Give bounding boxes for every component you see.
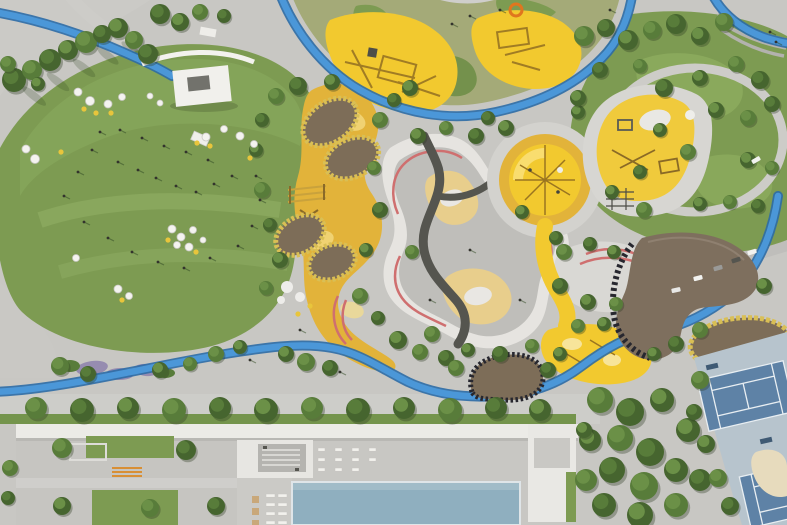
person: [775, 41, 778, 44]
tree-crown: [610, 298, 619, 307]
person: [155, 177, 158, 180]
tree-crown: [164, 399, 179, 414]
tree-crown: [709, 103, 719, 113]
parasol-yellow: [81, 106, 86, 111]
parasol-white: [200, 237, 206, 243]
tree-crown: [634, 60, 643, 69]
person: [63, 195, 66, 198]
tree-crown: [678, 419, 693, 434]
parasol-yellow: [165, 237, 170, 242]
tree-crown: [752, 200, 761, 209]
sun-lounger: [318, 458, 325, 461]
tree-crown: [348, 399, 363, 414]
tree-crown: [153, 363, 163, 373]
tree-crown: [571, 91, 581, 101]
tree-crown: [406, 246, 415, 255]
person: [469, 15, 472, 18]
tree-crown: [589, 388, 605, 404]
pool-lounger: [266, 521, 275, 524]
parasol-white: [147, 93, 153, 99]
tree-crown: [109, 19, 121, 31]
parasol-white: [168, 225, 176, 233]
tree-crown: [439, 351, 449, 361]
tree-crown: [652, 389, 667, 404]
tree-crown: [118, 398, 132, 412]
tree-crown: [368, 162, 377, 171]
tree-crown: [550, 232, 559, 241]
tree-crown: [634, 166, 643, 175]
person: [107, 237, 110, 240]
parasol-white: [114, 285, 122, 293]
person: [83, 221, 86, 224]
tree-crown: [76, 32, 90, 46]
tree-crown: [469, 129, 479, 139]
tree-crown: [637, 203, 647, 213]
parasol-white: [119, 94, 126, 101]
tree-crown: [388, 94, 397, 103]
tree-crown: [279, 347, 289, 357]
person: [77, 171, 80, 174]
tree-crown: [724, 196, 733, 205]
tree-crown: [667, 15, 679, 27]
person: [429, 299, 432, 302]
deck-parasol: [252, 508, 259, 515]
tree-crown: [273, 253, 283, 263]
person: [237, 245, 240, 248]
tree-crown: [172, 14, 183, 25]
tree-crown: [142, 500, 153, 511]
person: [259, 199, 262, 202]
tree-crown: [323, 361, 333, 371]
tree-crown: [619, 31, 631, 43]
tree-crown: [151, 5, 163, 17]
tree-crown: [648, 348, 657, 357]
tree-crown: [594, 494, 609, 509]
tree-crown: [716, 14, 727, 25]
tree-crown: [722, 498, 733, 509]
tree-crown: [139, 45, 151, 57]
person: [185, 151, 188, 154]
tree-crown: [572, 320, 581, 329]
pool-deck: [237, 478, 292, 525]
tree-crown: [729, 57, 739, 67]
parasol-yellow: [307, 303, 312, 308]
tree-crown: [618, 399, 635, 416]
tree-crown: [440, 399, 455, 414]
tree-crown: [482, 112, 491, 121]
tree-crown: [757, 279, 767, 289]
tree-crown: [40, 50, 54, 64]
tree-crown: [526, 340, 535, 349]
parasol-yellow: [247, 155, 252, 160]
tree-crown: [126, 32, 137, 43]
tree-crown: [94, 26, 105, 37]
sun-lounger: [335, 468, 342, 471]
tree-crown: [2, 492, 11, 501]
tree-crown: [403, 81, 413, 91]
tree-crown: [598, 318, 607, 327]
parasol-white: [177, 233, 185, 241]
pool-lounger: [278, 521, 287, 524]
sun-lounger: [369, 458, 376, 461]
tree-crown: [499, 121, 509, 131]
pool-lounger: [278, 494, 287, 497]
tree-crown: [575, 27, 587, 39]
person: [299, 329, 302, 332]
tree-crown: [553, 279, 563, 289]
tree-crown: [302, 398, 316, 412]
tree-crown: [693, 323, 703, 333]
tree-crown: [741, 153, 751, 163]
sun-lounger: [318, 468, 325, 471]
tree-crown: [693, 71, 703, 81]
parasol-white: [157, 100, 163, 106]
tree-crown: [218, 10, 227, 19]
tree-crown: [353, 289, 363, 299]
person: [255, 175, 258, 178]
tree-crown: [765, 97, 775, 107]
tree-crown: [373, 203, 383, 213]
person: [175, 185, 178, 188]
tree-crown: [493, 347, 503, 357]
person: [183, 267, 186, 270]
tree-crown: [654, 124, 663, 133]
sun-lounger: [335, 458, 342, 461]
deck-parasol: [252, 496, 259, 503]
tree-crown: [256, 399, 271, 414]
tree-crown: [425, 327, 435, 337]
parasol-yellow: [194, 140, 199, 145]
parasol-white: [31, 155, 40, 164]
person: [157, 261, 160, 264]
parasol-white: [86, 97, 95, 106]
parasol-white: [126, 293, 133, 300]
tree-crown: [210, 398, 224, 412]
tree-crown: [325, 75, 335, 85]
tree-crown: [593, 63, 603, 73]
parasol-yellow: [207, 143, 212, 148]
tree-crown: [698, 436, 709, 447]
tree-crown: [298, 354, 309, 365]
person: [769, 31, 772, 34]
person: [231, 175, 234, 178]
tree-crown: [449, 361, 459, 371]
tree-crown: [184, 358, 193, 367]
tree-crown: [209, 347, 219, 357]
central-pavilion: [237, 440, 313, 478]
sun-lounger: [352, 458, 359, 461]
tree-crown: [1, 57, 11, 67]
person: [339, 371, 342, 374]
person: [195, 191, 198, 194]
tree-crown: [666, 459, 681, 474]
parasol-white: [236, 132, 244, 140]
tree-crown: [372, 312, 381, 321]
parasol-yellow: [58, 149, 63, 154]
tree-crown: [373, 113, 383, 123]
tree-crown: [32, 78, 41, 87]
tree-crown: [26, 398, 40, 412]
tree-crown: [54, 498, 65, 509]
tree-crown: [632, 473, 649, 490]
tree-crown: [177, 441, 189, 453]
person: [137, 169, 140, 172]
sun-lounger: [318, 448, 325, 451]
play-tower: [367, 47, 377, 57]
person: [119, 129, 122, 132]
parasol-white: [74, 88, 82, 96]
tree-crown: [576, 470, 590, 484]
tree-crown: [59, 41, 71, 53]
tree-crown: [692, 372, 703, 383]
parasol-yellow: [193, 249, 198, 254]
tree-crown: [193, 5, 203, 15]
pool-lounger: [266, 494, 275, 497]
tree-crown: [694, 198, 703, 207]
person: [249, 359, 252, 362]
sun-lounger: [352, 448, 359, 451]
east-pavilion: [528, 424, 576, 522]
person: [117, 161, 120, 164]
parasol-white: [251, 141, 258, 148]
tree-crown: [581, 295, 591, 305]
parasol-white: [190, 227, 197, 234]
tree-crown: [208, 498, 219, 509]
tree-crown: [440, 122, 449, 131]
park-aerial-view: [0, 0, 787, 525]
pool-lounger: [266, 503, 275, 506]
tree-crown: [462, 344, 471, 353]
tree-crown: [234, 341, 243, 350]
tree-crown: [390, 332, 401, 343]
parasol-yellow: [93, 110, 98, 115]
tree-crown: [516, 206, 525, 215]
person: [141, 137, 144, 140]
tree-crown: [601, 458, 617, 474]
tree-crown: [23, 61, 35, 73]
tree-crown: [53, 439, 65, 451]
tree-crown: [264, 219, 273, 228]
tree-crown: [81, 367, 91, 377]
person: [209, 257, 212, 260]
tree-crown: [741, 111, 751, 121]
tree-crown: [411, 129, 421, 139]
tree-crown: [256, 114, 265, 123]
park-scene-svg: [0, 0, 787, 525]
person: [519, 299, 522, 302]
tree-crown: [255, 183, 265, 193]
tree-crown: [710, 470, 721, 481]
parasol-white: [221, 126, 228, 133]
pool-lounger: [278, 512, 287, 515]
person: [207, 159, 210, 162]
parasol-white: [22, 145, 30, 153]
tree-crown: [554, 348, 563, 357]
tree-crown: [766, 162, 775, 171]
person: [451, 23, 454, 26]
tree-crown: [52, 358, 63, 369]
person: [91, 149, 94, 152]
sun-lounger: [369, 448, 376, 451]
parasol-white: [73, 255, 80, 262]
tree-crown: [598, 20, 609, 31]
parasol-white: [202, 133, 210, 141]
pool-lounger: [266, 512, 275, 515]
tree-crown: [360, 244, 369, 253]
tree-crown: [687, 405, 697, 415]
tree-crown: [629, 503, 645, 519]
deck-parasol: [252, 520, 259, 525]
tree-crown: [290, 78, 301, 89]
person: [609, 9, 612, 12]
parasol-yellow: [119, 297, 124, 302]
tree-crown: [530, 400, 544, 414]
tree-crown: [606, 186, 615, 195]
tree-crown: [692, 28, 703, 39]
tree-crown: [752, 72, 763, 83]
person: [163, 145, 166, 148]
tree-crown: [269, 89, 279, 99]
tree-crown: [584, 238, 593, 247]
sun-lounger: [335, 448, 342, 451]
parasol-white: [185, 243, 193, 251]
tree-crown: [394, 398, 408, 412]
tree-crown: [260, 282, 269, 291]
tree-crown: [608, 246, 617, 255]
tree-crown: [681, 145, 691, 155]
tree-crown: [669, 337, 679, 347]
person: [131, 251, 134, 254]
pool-lounger: [278, 503, 287, 506]
parasol-yellow: [108, 110, 113, 115]
tree-crown: [666, 494, 681, 509]
person: [251, 225, 254, 228]
tree-crown: [557, 245, 567, 255]
parasol-white: [174, 242, 181, 249]
sun-lounger: [352, 468, 359, 471]
tree-crown: [413, 345, 423, 355]
tree-crown: [577, 423, 587, 433]
person: [469, 249, 472, 252]
tree-crown: [609, 426, 625, 442]
tree-crown: [638, 439, 655, 456]
person: [213, 183, 216, 186]
tree-crown: [656, 80, 667, 91]
tree-crown: [690, 470, 704, 484]
parasol-yellow: [295, 311, 300, 316]
tree-crown: [3, 461, 13, 471]
tree-crown: [541, 363, 551, 373]
parasol-white: [104, 100, 112, 108]
person: [99, 131, 102, 134]
tree-crown: [486, 398, 500, 412]
person: [499, 9, 502, 12]
tree-crown: [644, 22, 655, 33]
tree-crown: [72, 399, 87, 414]
